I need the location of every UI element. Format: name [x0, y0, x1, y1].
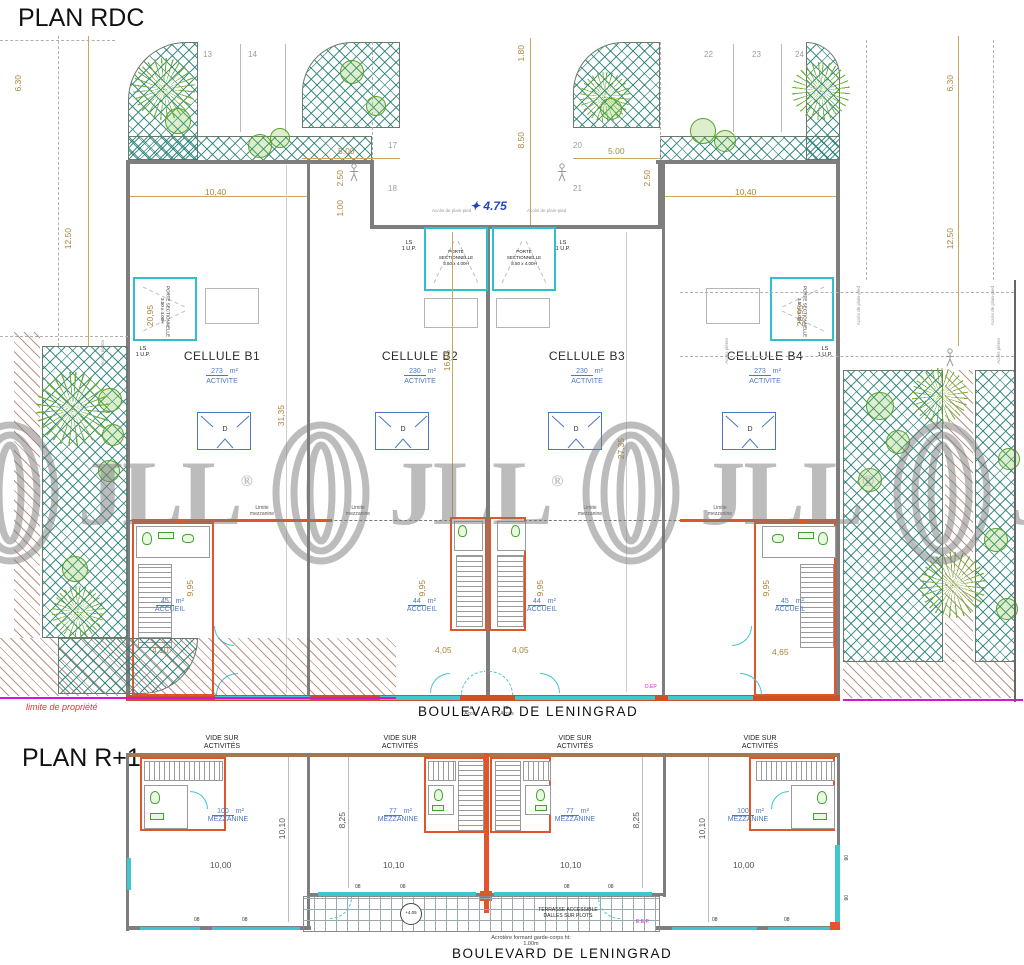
street-name-r1: BOULEVARD DE LENINGRAD [452, 946, 672, 962]
boundary-line [993, 40, 994, 280]
vide-label: VIDE SURACTIVITÉS [715, 735, 805, 751]
dim-line [286, 165, 287, 693]
dim-995: 9,95 [418, 580, 428, 597]
shrub [165, 108, 191, 134]
dep-label: D.EP [645, 685, 657, 691]
entry-arc [489, 671, 513, 695]
path-line [680, 356, 1014, 357]
canopy-outline [424, 298, 478, 328]
exit-label: LS1 U.P. [548, 240, 578, 253]
window-code: 08 [712, 918, 718, 924]
dim-180: 1.80 [517, 45, 527, 62]
dim-line [302, 158, 400, 159]
mezzanine-label-3: 77 m²MEZZANINE [540, 808, 610, 824]
level-marker: ✦ 4.75 [470, 200, 507, 214]
dim-630-left: 6.30 [14, 75, 24, 92]
dim-100: 1.00 [336, 200, 346, 217]
wall-courtyard-west [370, 160, 374, 229]
dock-leveller: D [375, 412, 429, 450]
glazing [127, 858, 131, 890]
palm-plant [792, 62, 850, 120]
dim-line [88, 36, 89, 346]
mezzanine-label-4: 100 m²MEZZANINE [713, 808, 783, 824]
dim-1010-h: 10,10 [560, 861, 581, 871]
dim-500-right: 5.00 [608, 147, 625, 157]
mezzanine-label-1: 100 m²MEZZANINE [193, 808, 263, 824]
pedestrian-icon [944, 348, 956, 369]
parking-number: 14 [248, 50, 257, 59]
dim-825-v: 8,25 [632, 812, 642, 829]
shrub [714, 130, 736, 152]
dim-line [530, 38, 531, 228]
dim-2095-b4: 20,95 [796, 305, 806, 326]
dim-line [708, 757, 709, 922]
parking-divider [733, 44, 734, 132]
dim-1010-v: 10,10 [278, 818, 288, 839]
palm-plant [36, 372, 110, 446]
vide-label: VIDE SURACTIVITÉS [177, 735, 267, 751]
glazing [212, 927, 300, 930]
dim-1695: 16,95 [443, 350, 453, 371]
level-star-icon: ✦ [470, 199, 480, 213]
dim-1040-left: 10,40 [205, 188, 226, 198]
palm-plant [912, 368, 968, 424]
dim-1000-h: 10,00 [210, 861, 231, 871]
courtyard-edge [372, 42, 373, 160]
limite-mezzanine-label: Limitemezzanine [698, 506, 742, 518]
r1-wall-3-4 [663, 753, 666, 897]
parking-divider [240, 44, 241, 132]
dim-995: 9,95 [186, 580, 196, 597]
shrub [62, 556, 88, 582]
entry-arc [430, 673, 450, 693]
shrub [886, 430, 910, 454]
dim-1040-right: 10,40 [735, 188, 756, 198]
pedestrian-icon [556, 163, 568, 184]
limite-mezzanine-label: Limitemezzanine [568, 506, 612, 518]
eep-label: E.E.P. [636, 920, 650, 926]
accueil-core-b2 [450, 517, 487, 631]
accueil-label-b1: 45 m²ACCUEIL [140, 598, 200, 614]
entry-arc [461, 671, 485, 695]
shrub [102, 424, 124, 446]
site-edge [1014, 280, 1016, 702]
dim-850: 8.50 [517, 132, 527, 149]
glazing [140, 927, 200, 930]
parking-number: 24 [795, 50, 804, 59]
canopy-outline [706, 288, 760, 324]
shrub [98, 460, 120, 482]
acces-plain-pied-label: Accès de plain-pied [856, 286, 861, 325]
dim-2095-b1: 20,95 [146, 305, 156, 326]
glazing [672, 927, 757, 930]
level-marker-r1: +4.05 [400, 903, 422, 925]
vide-label: VIDE SURACTIVITÉS [530, 735, 620, 751]
dim-1250-left: 12.50 [64, 228, 74, 249]
wall-east [836, 160, 840, 700]
dim-825-v: 8,25 [338, 812, 348, 829]
dim-line [573, 158, 660, 159]
dim-1010-h: 10,10 [383, 861, 404, 871]
window-code: 08 [841, 855, 847, 861]
accueil-label-b4: 45 m²ACCUEIL [760, 598, 820, 614]
sectional-door-b3: PORTESECTIONNELLE3.50 x 4.00H [492, 227, 556, 291]
door-arc [732, 626, 752, 646]
dim-line [958, 36, 959, 346]
boundary-line [58, 36, 59, 346]
dock-leveller: D [722, 412, 776, 450]
parking-number: 17 [388, 141, 397, 150]
garden-bed [302, 42, 400, 128]
window-code: 08 [564, 885, 570, 891]
glazing [768, 927, 830, 930]
cell-label-b3: CELLULE B3 230 m² ACTIVITE [527, 350, 647, 386]
acces-pieton-label: Accès piéton [996, 338, 1001, 364]
accueil-label-b3: 44 m²ACCUEIL [512, 598, 572, 614]
canopy-outline [496, 298, 550, 328]
dim-995: 9,95 [536, 580, 546, 597]
window-code: 08 [841, 895, 847, 901]
parking-divider [285, 44, 286, 132]
dock-leveller: D [548, 412, 602, 450]
dock-leveller: D [197, 412, 251, 450]
cell-label-b1: CELLULE B1 273 m² ACTIVITE [162, 350, 282, 386]
shrub [998, 448, 1020, 470]
parking-number: 21 [573, 184, 582, 193]
shrub [600, 98, 622, 120]
wall-corner [830, 922, 840, 930]
shrub [690, 118, 716, 144]
acces-pieton-label: Accès piéton [724, 338, 729, 364]
accueil-label-b2: 44 m²ACCUEIL [392, 598, 452, 614]
limite-mezzanine-label: Limitemezzanine [240, 506, 284, 518]
limite-mezzanine-label: Limitemezzanine [336, 506, 380, 518]
parking-number: 22 [704, 50, 713, 59]
shrub [858, 468, 882, 492]
parking-number: 18 [388, 184, 397, 193]
sectional-door-b2: PORTESECTIONNELLE3.50 x 4.00H [424, 227, 488, 291]
shrub [340, 60, 364, 84]
dim-995: 9,95 [762, 580, 772, 597]
dim-1000-h: 10,00 [733, 861, 754, 871]
boundary-line [0, 40, 115, 41]
plan-r1-title: PLAN R+1 [22, 744, 141, 773]
dim-630-right: 6.30 [946, 75, 956, 92]
glazing [668, 696, 753, 700]
acces-plain-pied-label: Accès de plain-pied [527, 208, 566, 213]
property-line [843, 699, 1023, 701]
courtyard-edge [660, 42, 661, 160]
acces-plain-pied-label: Accès de plain-pied [432, 208, 471, 213]
dim-405: 4,05 [512, 646, 529, 656]
shrub [270, 128, 290, 148]
window-code: 08 [242, 918, 248, 924]
palm-plant [920, 552, 986, 618]
shrub [366, 96, 386, 116]
cell-label-b2: CELLULE B2 230 m² ACTIVITE [360, 350, 480, 386]
acces-plain-pied-label: Accès de plain-pied [990, 286, 995, 325]
dim-405: 4,05 [435, 646, 452, 656]
floor-plan-canvas: PLAN RDC 6.30 12.50 6.30 12.50 13 14 22 … [0, 0, 1024, 965]
dim-line [288, 757, 289, 922]
window-code: 08 [400, 885, 406, 891]
shrub [866, 392, 894, 420]
shrub [98, 388, 122, 412]
shrub [248, 134, 272, 158]
r1-core-2 [424, 757, 485, 833]
dim-line [626, 232, 627, 692]
parking-divider [781, 44, 782, 132]
dim-250-right: 2.50 [643, 170, 653, 187]
parking-number: 20 [573, 141, 582, 150]
dim-465: 4,65 [772, 648, 789, 658]
dim-500-left: 5.00 [338, 147, 355, 157]
entry-arc [540, 673, 560, 693]
palm-plant [52, 586, 104, 638]
mezzanine-label-2: 77 m²MEZZANINE [363, 808, 433, 824]
parking-number: 23 [752, 50, 761, 59]
sidewalk-hatch [14, 332, 40, 638]
r1-wall-east [837, 753, 840, 847]
dim-2735: 27,35 [617, 438, 627, 459]
property-line [0, 697, 396, 699]
exit-label: LS1 U.P. [128, 346, 158, 359]
window-code: 08 [194, 918, 200, 924]
dim-3135: 31,35 [277, 405, 287, 426]
dim-1010-v: 10,10 [698, 818, 708, 839]
sidewalk-hatch [843, 660, 1015, 698]
dim-250-left: 2.50 [336, 170, 346, 187]
dim-line [348, 757, 349, 888]
dim-line [452, 232, 453, 517]
r1-wall-west [126, 753, 129, 931]
terrasse-label: TERRASSE ACCESSIBLEDALLES SUR PLOTS [516, 908, 620, 920]
window-code: 08 [784, 918, 790, 924]
vide-label: VIDE SURACTIVITÉS [355, 735, 445, 751]
dim-1250-right: 12.50 [946, 228, 956, 249]
boundary-line [866, 40, 867, 280]
street-name-rdc: BOULEVARD DE LENINGRAD [418, 704, 638, 720]
exit-label: LS1 U.P. [394, 240, 424, 253]
canopy-outline [205, 288, 259, 324]
sectional-door-b1: PORTE SECTIONNELLE 3.50 x 4.00H [133, 277, 197, 341]
wall-north-b4 [656, 160, 840, 164]
pedestrian-icon [348, 163, 360, 184]
garden-band [660, 136, 840, 162]
window-code: 08 [355, 885, 361, 891]
plan-rdc-title: PLAN RDC [18, 4, 144, 33]
glazing [835, 845, 840, 929]
shrub [984, 528, 1008, 552]
wall-b1-b2 [307, 162, 310, 698]
wall-north-b1 [126, 160, 374, 164]
window-code: 08 [608, 885, 614, 891]
path-line [680, 292, 1014, 293]
wall-b3-b4 [662, 162, 665, 698]
parking-number: 13 [203, 50, 212, 59]
property-line-label: limite de propriété [26, 702, 98, 712]
dim-line [642, 757, 643, 888]
glazing [515, 696, 655, 700]
